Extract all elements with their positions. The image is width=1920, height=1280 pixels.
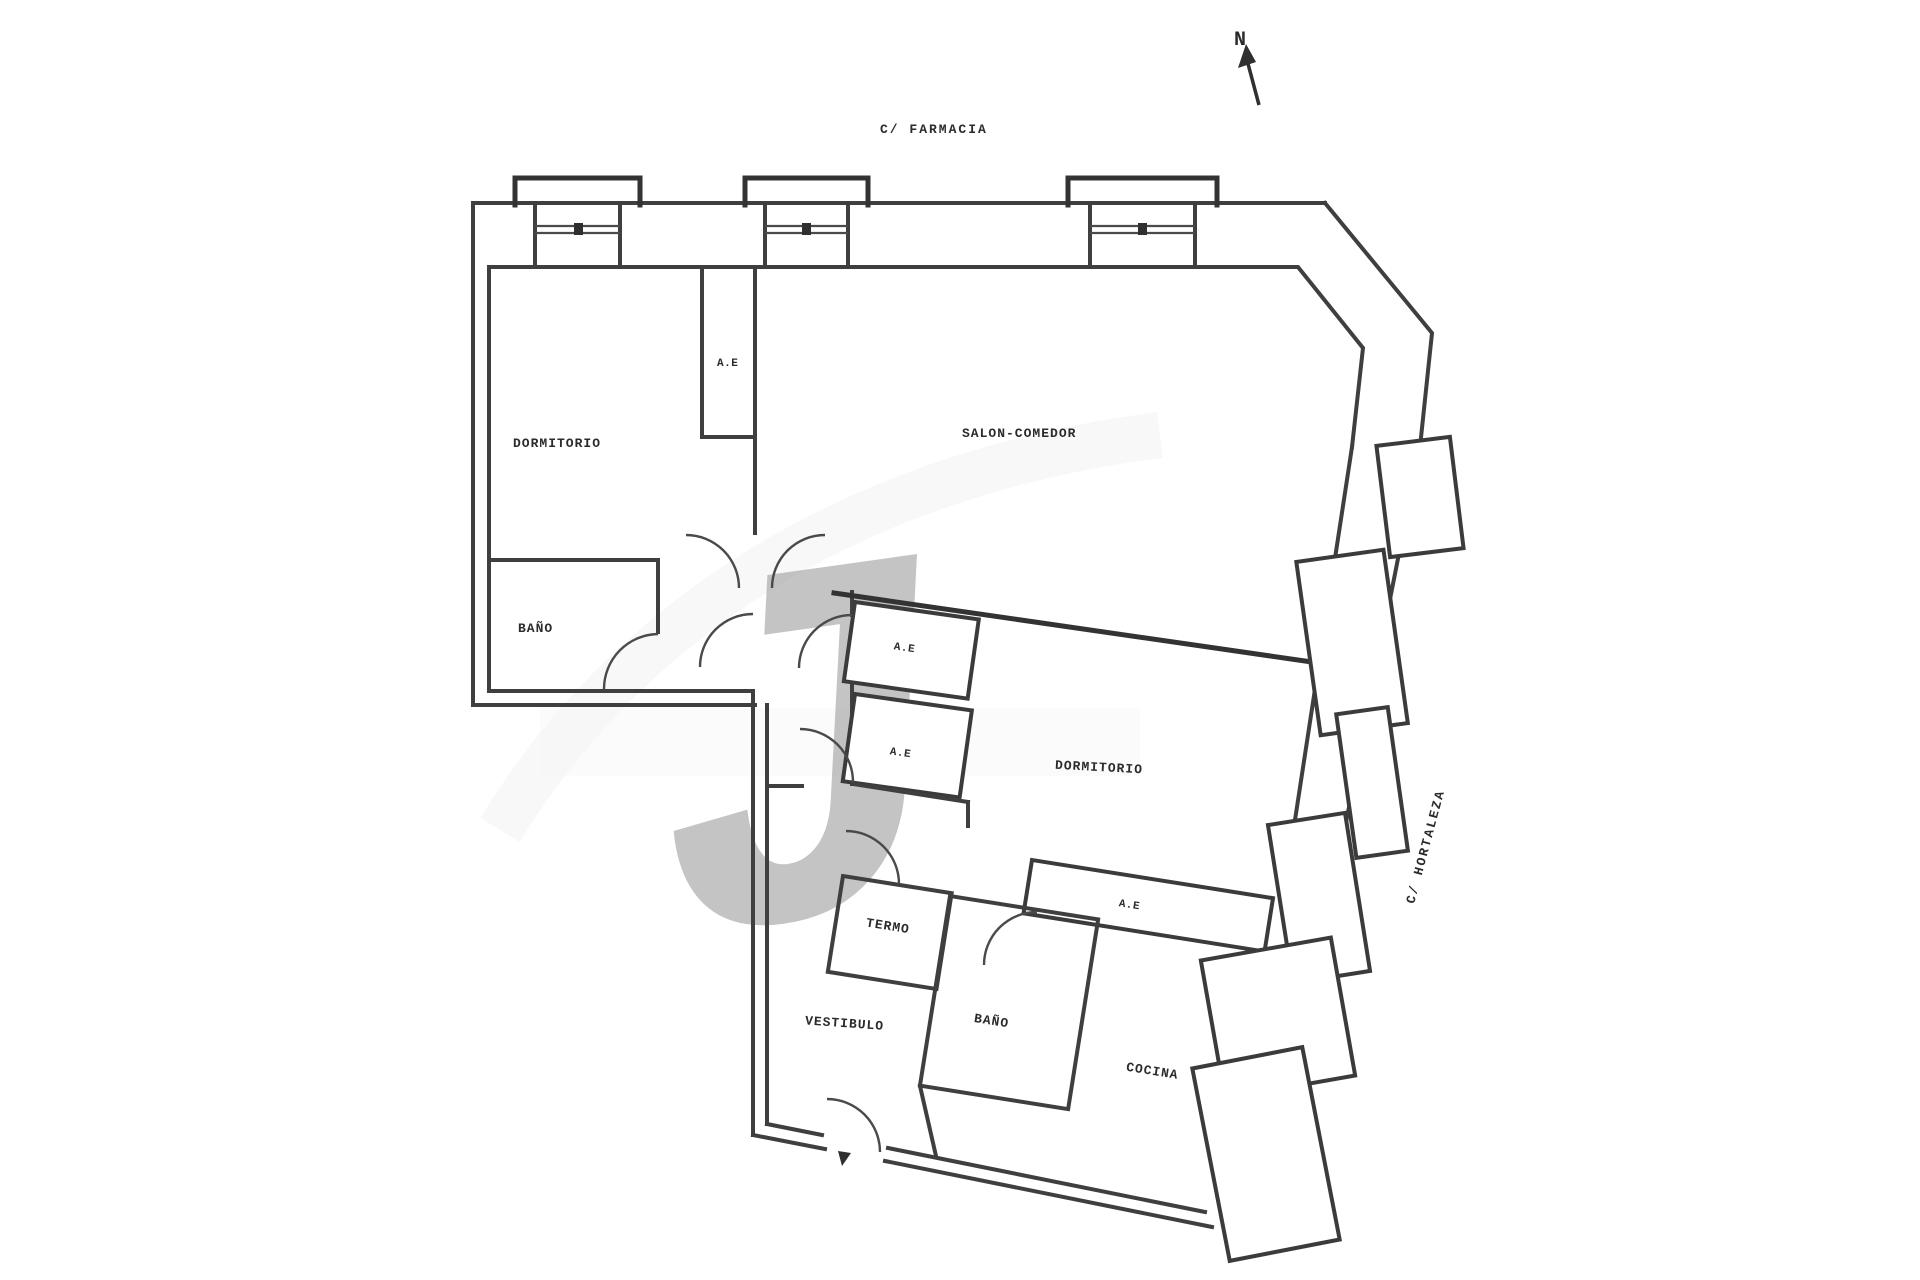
window-bay-2 (745, 178, 868, 265)
room-label-dormitorio-1: DORMITORIO (513, 436, 601, 451)
door-arc-bano2 (984, 912, 1037, 965)
facade-bays-top (515, 178, 1217, 265)
wall-top-inner (489, 267, 1363, 447)
wall-bottom-inner (767, 1124, 1205, 1212)
closet-hall-lower (843, 694, 972, 798)
north-label: N (1234, 29, 1246, 52)
window-bay-right-1 (1376, 437, 1463, 557)
window-bay-3 (1068, 178, 1217, 265)
street-label-farmacia: C/ FARMACIA (880, 122, 988, 137)
closet-label-dorm1: A.E (717, 358, 738, 370)
room-label-bano-1: BAÑO (518, 621, 553, 636)
north-indicator: N (1234, 29, 1259, 105)
entrance-marker-icon (838, 1151, 851, 1166)
window-bay-1 (515, 178, 640, 265)
street-label-hortaleza: C/ HORTALEZA (1403, 788, 1448, 905)
door-arc-entrance (827, 1099, 880, 1152)
room-label-salon-comedor: SALON-COMEDOR (962, 426, 1076, 441)
floor-plan-page: J (0, 0, 1920, 1280)
wall-cocina-left (920, 1086, 936, 1156)
closet-cocina (1024, 860, 1273, 952)
wall-chamfer-outer (1325, 203, 1432, 447)
floor-plan-drawing: J (0, 0, 1920, 1280)
north-arrow-line (1247, 60, 1259, 105)
room-label-cocina: COCINA (1125, 1060, 1180, 1083)
wall-bottom-outer (753, 1135, 1212, 1227)
